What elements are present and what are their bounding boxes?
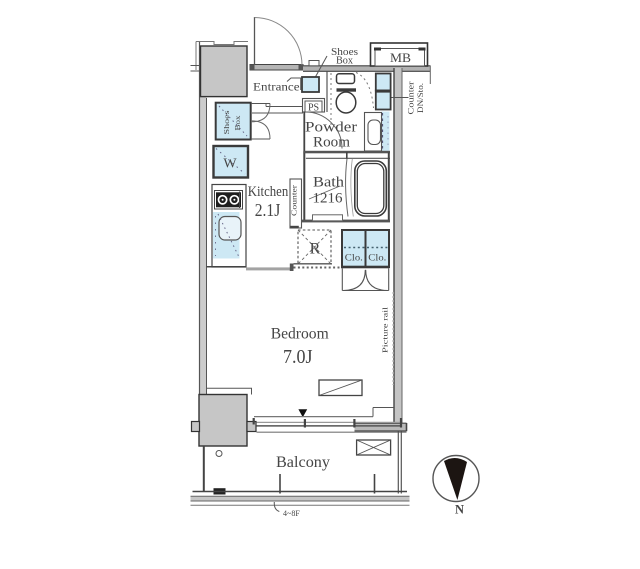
svg-text:R: R [310,241,321,258]
svg-text:Balcony: Balcony [276,454,330,471]
svg-text:4~8F: 4~8F [283,509,300,518]
svg-text:Counter: Counter [406,81,416,114]
svg-text:Box: Box [336,56,353,67]
svg-text:Clo.: Clo. [368,254,386,264]
svg-text:Shoes: Shoes [222,110,231,134]
svg-text:MB: MB [390,51,411,65]
svg-text:Room: Room [313,135,351,151]
svg-text:N: N [455,503,464,517]
svg-text:W: W [223,157,237,172]
svg-text:Entrance: Entrance [253,80,300,94]
svg-text:Box: Box [233,115,242,130]
svg-text:7.0J: 7.0J [283,346,313,368]
svg-text:Powder: Powder [305,120,357,136]
svg-text:1216: 1216 [313,191,344,207]
svg-text:2.1J: 2.1J [255,200,281,220]
svg-text:Kitchen: Kitchen [248,184,289,200]
svg-text:Bath: Bath [313,175,345,191]
svg-text:Clo.: Clo. [345,254,363,264]
svg-text:DN/Sto.: DN/Sto. [415,83,425,113]
svg-text:Picture rail: Picture rail [380,307,389,353]
svg-text:Counter: Counter [290,184,298,216]
svg-text:Bedroom: Bedroom [271,325,330,342]
